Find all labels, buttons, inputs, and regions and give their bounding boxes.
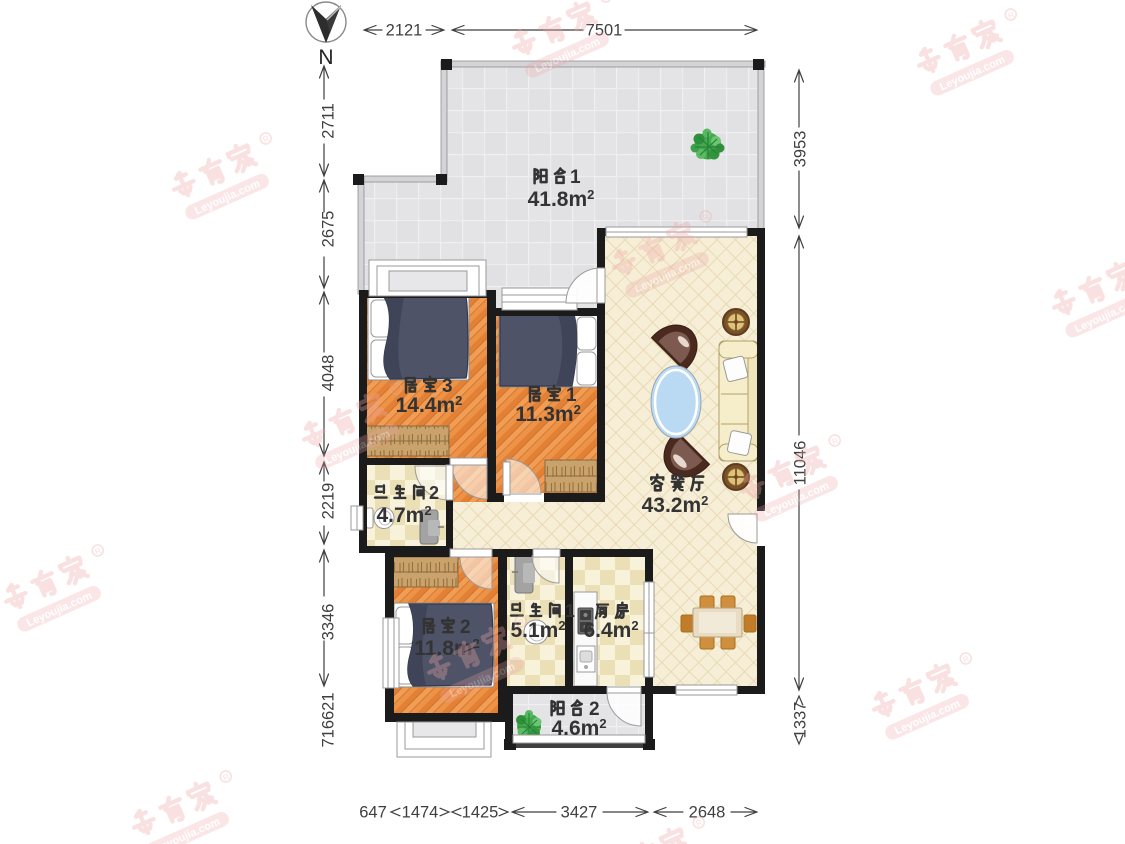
svg-text:2121: 2121 bbox=[386, 22, 423, 40]
svg-text:4.7m2: 4.7m2 bbox=[376, 503, 431, 527]
svg-text:4048: 4048 bbox=[320, 355, 338, 392]
svg-text:41.8m2: 41.8m2 bbox=[528, 187, 595, 211]
svg-text:2: 2 bbox=[429, 483, 439, 503]
svg-text:6.4m2: 6.4m2 bbox=[583, 618, 638, 642]
svg-text:11.3m2: 11.3m2 bbox=[515, 402, 581, 426]
svg-text:716621: 716621 bbox=[320, 692, 338, 747]
svg-text:3346: 3346 bbox=[320, 604, 338, 641]
svg-text:43.2m2: 43.2m2 bbox=[642, 493, 709, 517]
svg-text:1425: 1425 bbox=[462, 804, 499, 822]
svg-text:647: 647 bbox=[359, 804, 387, 822]
svg-text:4.6m2: 4.6m2 bbox=[551, 716, 606, 740]
svg-text:1474: 1474 bbox=[402, 804, 439, 822]
svg-text:1: 1 bbox=[565, 601, 575, 621]
svg-text:3427: 3427 bbox=[561, 804, 598, 822]
svg-text:2219: 2219 bbox=[320, 483, 338, 520]
svg-text:2: 2 bbox=[460, 617, 471, 638]
svg-text:N: N bbox=[318, 46, 333, 69]
svg-text:2711: 2711 bbox=[320, 103, 338, 138]
svg-text:1: 1 bbox=[570, 167, 581, 188]
svg-text:14.4m2: 14.4m2 bbox=[396, 393, 463, 417]
svg-text:2675: 2675 bbox=[320, 211, 338, 248]
svg-text:3953: 3953 bbox=[792, 131, 810, 168]
svg-text:1337: 1337 bbox=[792, 702, 810, 739]
